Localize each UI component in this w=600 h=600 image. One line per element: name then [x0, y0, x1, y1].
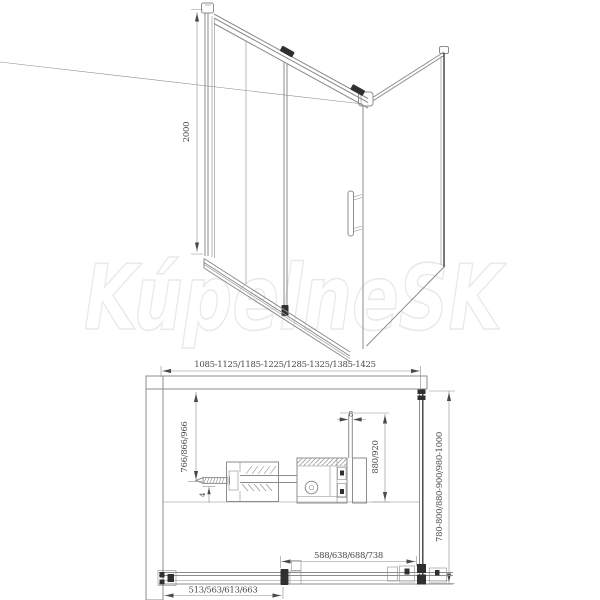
depth-dimension: 780-800/880-900/980-1000 — [429, 391, 455, 584]
glass-thickness-label: 8 — [349, 410, 354, 419]
door-handle — [348, 191, 362, 236]
entry-width-dimension: 513/563/613/663 — [164, 586, 283, 600]
glass-thickness-dimension: 8 — [337, 410, 366, 422]
height-dimension-label: 2000 — [182, 122, 192, 142]
width-dimension-label: 1085-1125/1185-1225/1285-1325/1385-1425 — [194, 360, 375, 370]
door-width-dimension-label: 588/638/688/738 — [314, 551, 383, 561]
entry-width-dimension-label: 513/563/613/663 — [189, 586, 258, 596]
wall-profile — [202, 3, 215, 258]
height-dimension: 2000 — [182, 10, 203, 255]
technical-drawing-canvas: KúpelneSK 2000 — [0, 0, 600, 600]
door-glass-dimension-label: 880/920 — [371, 440, 381, 473]
door-glass-dimension: 880/920 — [371, 414, 390, 502]
fixed-glass-dimension-label: 766/866/966 — [180, 421, 190, 472]
gap-dimension-label: 4 — [198, 492, 207, 497]
width-dimension: 1085-1125/1185-1225/1285-1325/1385-1425 — [161, 360, 421, 389]
gap-dimension: 4 — [198, 487, 215, 504]
top-rail — [214, 14, 373, 108]
depth-dimension-label: 780-800/880-900/980-1000 — [435, 432, 445, 542]
product-technical-drawing: KúpelneSK 2000 — [0, 0, 600, 600]
plan-view: 1085-1125/1185-1225/1285-1325/1385-1425 … — [146, 360, 455, 600]
carriage-detail — [297, 458, 367, 503]
side-panel-plan — [418, 389, 426, 584]
fixed-glass-dimension: 766/866/966 — [180, 392, 202, 482]
bottom-rail-plan — [158, 561, 453, 586]
